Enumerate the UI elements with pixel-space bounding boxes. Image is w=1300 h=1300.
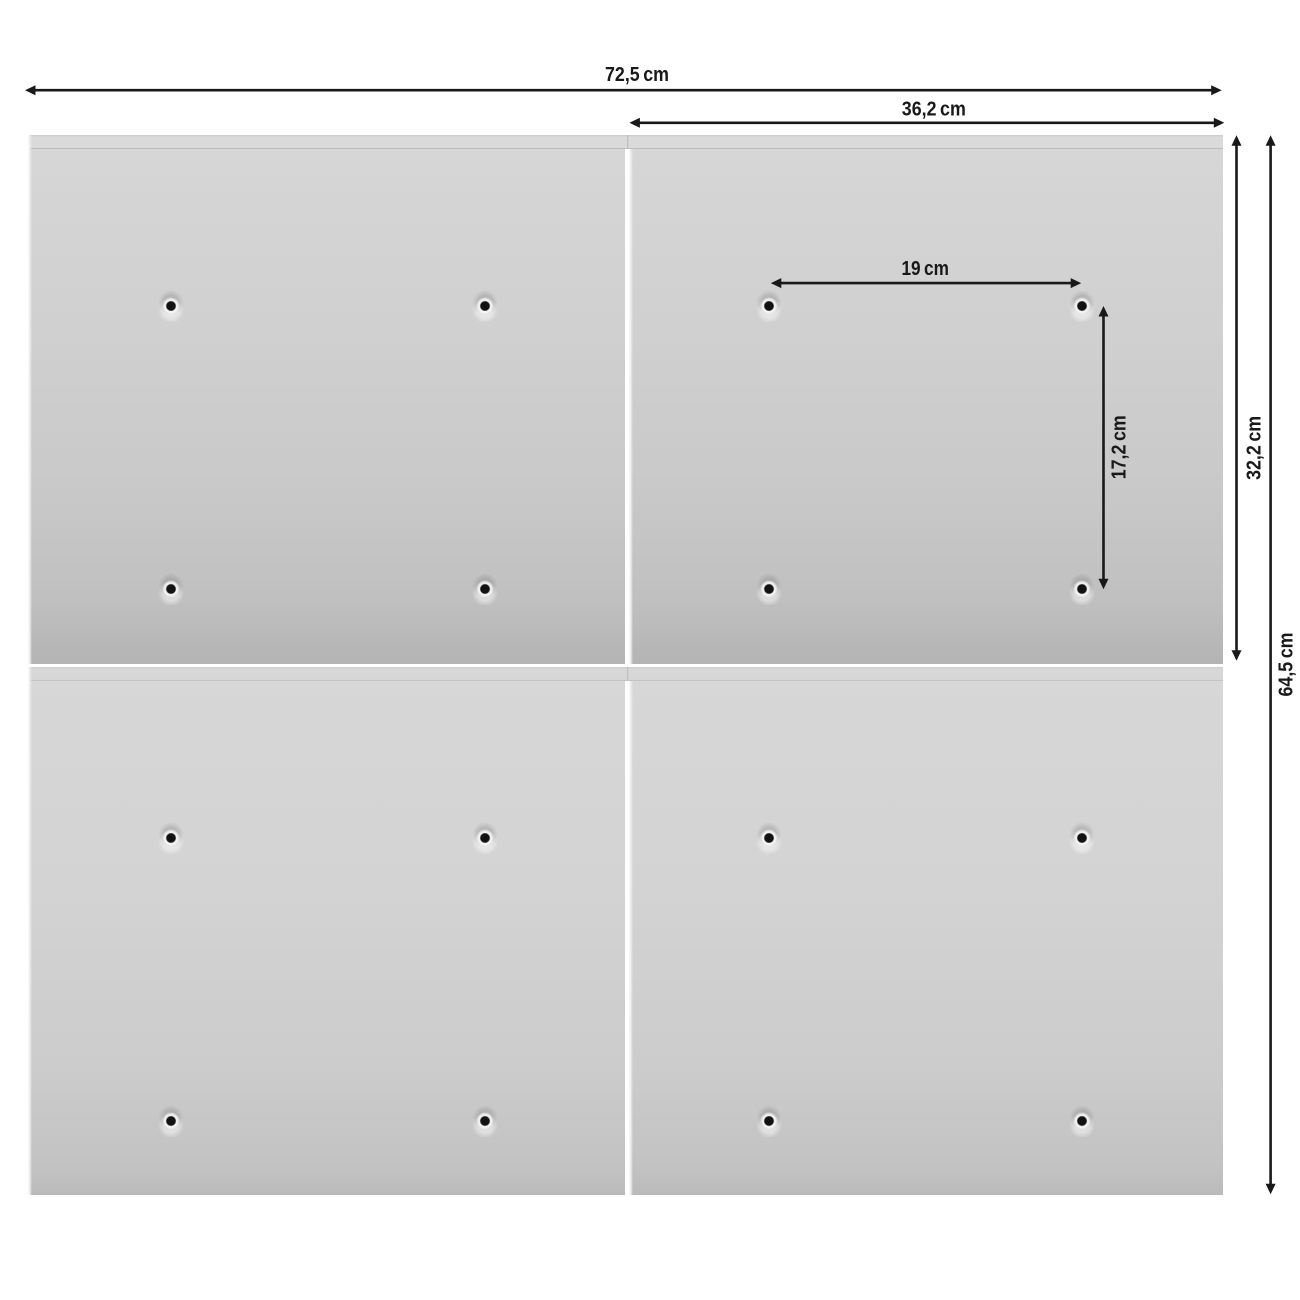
svg-text:72,5 cm: 72,5 cm: [605, 64, 669, 86]
svg-text:64,5 cm: 64,5 cm: [1276, 633, 1298, 697]
svg-text:36,2 cm: 36,2 cm: [902, 99, 966, 121]
svg-text:19 cm: 19 cm: [901, 258, 949, 280]
svg-text:17,2 cm: 17,2 cm: [1108, 415, 1130, 479]
svg-text:32,2 cm: 32,2 cm: [1243, 416, 1265, 480]
